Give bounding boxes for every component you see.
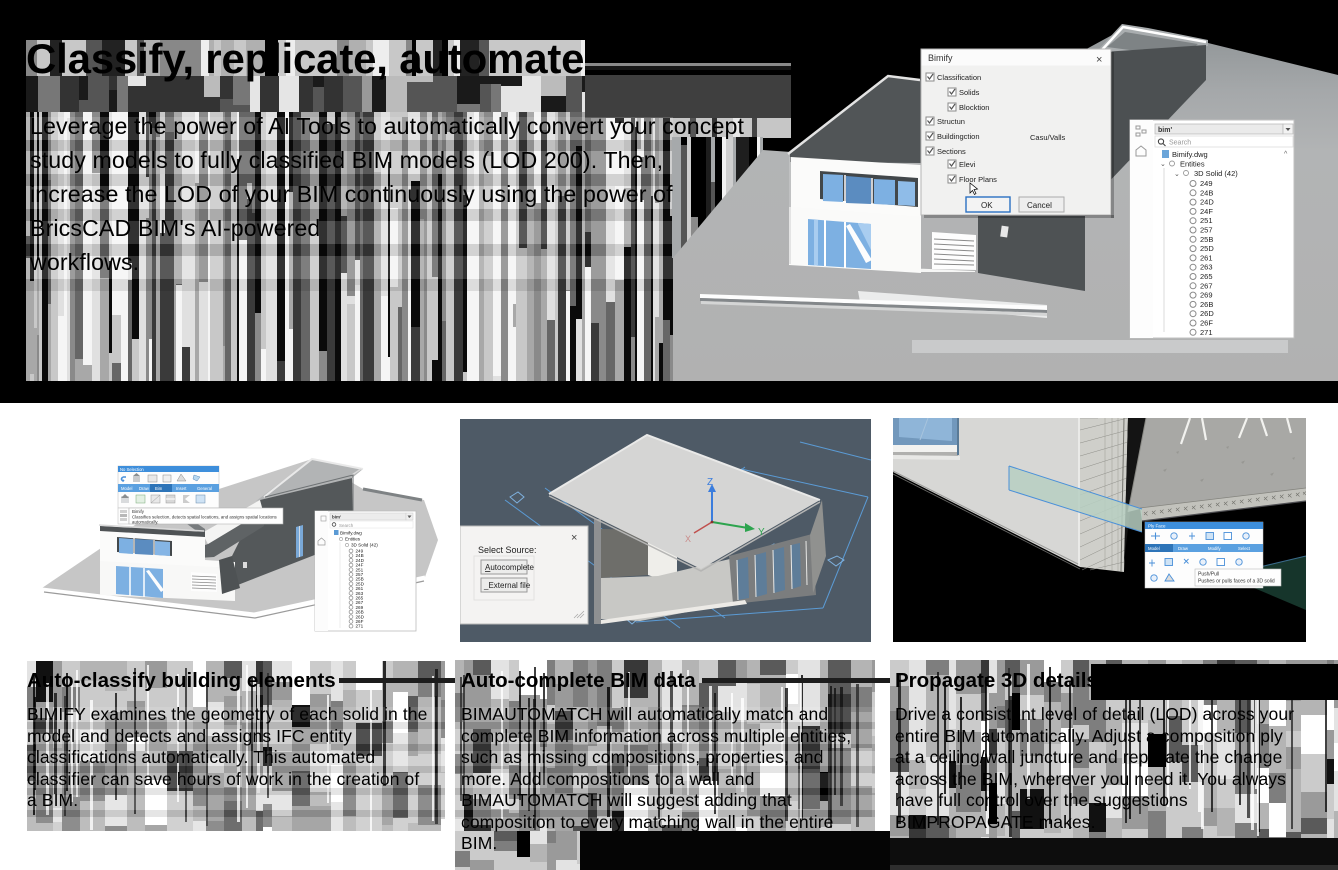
svg-text:Bim: Bim (155, 486, 163, 491)
svg-text:271: 271 (1200, 328, 1213, 337)
svg-text:×: × (571, 532, 577, 544)
svg-text:Entities: Entities (1180, 160, 1205, 169)
svg-text:×: × (1096, 54, 1102, 66)
svg-text:24F: 24F (1200, 207, 1213, 216)
svg-text:Pushes or pulls faces of a 3D: Pushes or pulls faces of a 3D solid (1198, 579, 1275, 585)
svg-text:Select: Select (1238, 546, 1251, 551)
svg-text:Insert: Insert (176, 486, 187, 491)
svg-text:Bimify.dwg: Bimify.dwg (1172, 150, 1208, 159)
svg-text:OK: OK (981, 201, 993, 210)
svg-text:257: 257 (1200, 226, 1213, 235)
svg-text:Buildingction: Buildingction (937, 132, 980, 141)
svg-text:24D: 24D (1200, 198, 1214, 207)
svg-text:⌄: ⌄ (1174, 171, 1180, 178)
svg-text:267: 267 (1200, 281, 1213, 290)
svg-text:24B: 24B (1200, 188, 1213, 197)
svg-text:⌄: ⌄ (1160, 161, 1166, 168)
svg-text:Draw: Draw (139, 486, 150, 491)
svg-text:3D Solid (42): 3D Solid (42) (351, 543, 378, 548)
svg-text:Search: Search (1169, 140, 1191, 147)
svg-text:bim': bim' (1158, 127, 1172, 134)
svg-text:269: 269 (1200, 291, 1213, 300)
svg-text:26D: 26D (1200, 309, 1214, 318)
svg-text:251: 251 (1200, 216, 1213, 225)
svg-text:Model: Model (121, 486, 132, 491)
svg-text:26F: 26F (1200, 319, 1213, 328)
svg-text:X: X (685, 534, 691, 544)
svg-text:26B: 26B (1200, 300, 1213, 309)
svg-text:_External file: _External file (483, 581, 531, 590)
svg-text:Search: Search (339, 523, 354, 528)
svg-text:Y: Y (758, 527, 765, 538)
svg-text:Structun: Structun (937, 117, 965, 126)
svg-text:3D Solid (42): 3D Solid (42) (1194, 169, 1238, 178)
svg-text:General: General (197, 486, 212, 491)
svg-text:Entities: Entities (345, 537, 361, 542)
svg-text:Draw: Draw (1178, 546, 1189, 551)
svg-text:25D: 25D (1200, 244, 1214, 253)
svg-text:Push/Pull: Push/Pull (1198, 572, 1219, 578)
svg-text:Model: Model (1148, 546, 1160, 551)
svg-text:Classification: Classification (937, 73, 981, 82)
svg-text:Bimify: Bimify (132, 509, 145, 514)
svg-text:Casu/Valls: Casu/Valls (1030, 133, 1066, 142)
svg-text:263: 263 (1200, 263, 1213, 272)
svg-text:25B: 25B (1200, 235, 1213, 244)
svg-text:bim': bim' (332, 515, 341, 520)
svg-text:261: 261 (1200, 253, 1213, 262)
svg-text:Z: Z (707, 477, 713, 488)
svg-text:Bimify: Bimify (928, 53, 953, 63)
svg-text:Ply Face: Ply Face (1148, 524, 1166, 529)
svg-text:Floor Plans: Floor Plans (959, 175, 997, 184)
svg-text:Elevi: Elevi (959, 160, 976, 169)
svg-text:Solids: Solids (959, 88, 980, 97)
svg-text:Bimify.dwg: Bimify.dwg (340, 531, 362, 536)
svg-text:automatically.: automatically. (132, 520, 159, 525)
svg-text:Sections: Sections (937, 147, 966, 156)
svg-text:271: 271 (356, 624, 364, 629)
svg-text:Blocktion: Blocktion (959, 103, 989, 112)
svg-text:Cancel: Cancel (1027, 201, 1052, 210)
svg-text:Autocomplete: Autocomplete (485, 563, 534, 572)
svg-text:249: 249 (1200, 179, 1213, 188)
svg-text:No Selection: No Selection (120, 467, 144, 472)
svg-text:Select Source:: Select Source: (478, 545, 537, 555)
svg-text:265: 265 (1200, 272, 1213, 281)
svg-text:Modify: Modify (1208, 546, 1222, 551)
